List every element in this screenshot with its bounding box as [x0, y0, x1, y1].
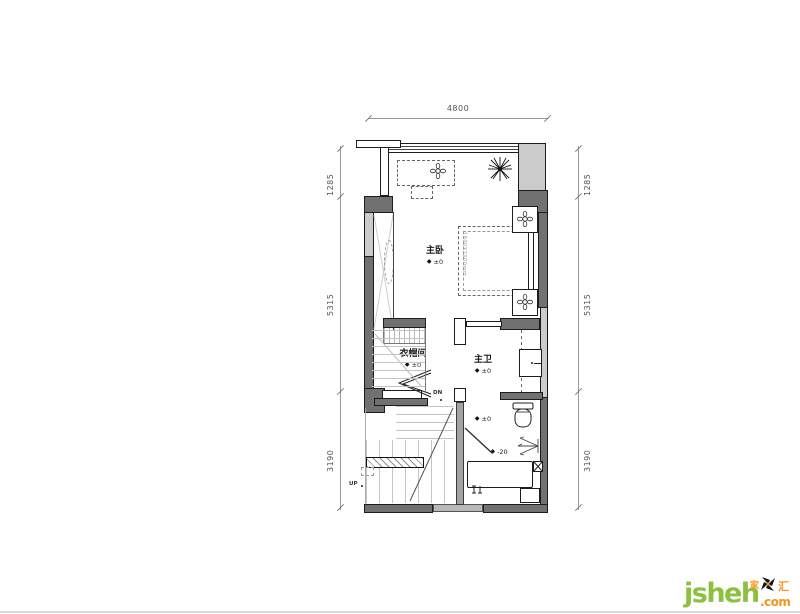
door-swing-line [464, 427, 494, 455]
wall-closet-top [383, 318, 426, 328]
diamond-icon: ◆ [475, 368, 480, 374]
door-track-bath [466, 321, 502, 327]
desk-outline [397, 160, 455, 186]
window-line [388, 146, 518, 147]
wall-bottom-right [483, 504, 548, 513]
stairs-up-label: UP [349, 481, 358, 487]
chair-outline [411, 186, 433, 199]
sink-faucet-line [534, 363, 542, 364]
elevation-value: ±0 [482, 367, 492, 375]
door-jamb-bath [454, 318, 466, 345]
floor-drain-x-icon [533, 461, 543, 472]
dim-tick [544, 115, 551, 122]
watermark: jsheh 家 汇 .com [680, 574, 800, 614]
shower-head-icon [516, 435, 540, 457]
window-line [388, 149, 518, 150]
dim-right-5315: 5315 [583, 272, 592, 316]
wall-hall-bath [456, 402, 464, 505]
stair-left-line [365, 408, 366, 504]
dim-right-1285: 1285 [583, 152, 592, 196]
dim-right-line [578, 146, 579, 510]
ceiling-light-icon [430, 163, 446, 179]
stair-note-box [361, 467, 374, 476]
stair-break-line-upper [373, 330, 425, 390]
room-label-master-bedroom: 主卧 [415, 246, 455, 256]
wall-bath-top [500, 318, 540, 330]
stairs-dn-label: DN [433, 390, 442, 396]
ceiling-light-icon [517, 294, 533, 310]
diamond-icon: ◆ [427, 259, 432, 265]
watermark-tld: .com [760, 595, 790, 609]
elevation-value: ±0 [434, 258, 444, 266]
dim-right-3190: 3190 [583, 428, 592, 472]
stairs-dn-dot [440, 399, 442, 401]
shower-step [520, 488, 540, 503]
elevation-marker-bath: ◆ ±0 [463, 367, 503, 375]
bed-headboard [528, 224, 534, 298]
plant-icon [487, 156, 513, 182]
dim-left-1285: 1285 [326, 152, 335, 196]
bed-inner-outline [463, 231, 529, 291]
window-line [388, 143, 518, 144]
watermark-logo-right: 汇 [778, 578, 789, 594]
wall-bottom-mid [433, 504, 483, 512]
diamond-icon: ◆ [475, 416, 480, 422]
ceiling-light-icon [517, 211, 533, 227]
elevation-marker-shower-zero: ◆ ±0 [468, 415, 498, 423]
wall-return-top [356, 140, 401, 148]
floor-plan-canvas: 4800 1285 5315 3190 1285 5315 3190 [0, 0, 800, 614]
bottom-border-line [0, 611, 800, 613]
stair-break-line [398, 404, 456, 504]
dim-left-5315: 5315 [326, 272, 335, 316]
elevation-value: -20 [497, 448, 508, 456]
shower-mixer-icon [470, 484, 486, 495]
wall-left-block [364, 196, 393, 213]
elevation-marker-bedroom: ◆ ±0 [415, 258, 455, 266]
stair-handrail [366, 457, 424, 468]
sink-faucet-dot [531, 362, 533, 364]
stair-edge-line [425, 328, 426, 392]
dim-left-line [340, 146, 341, 510]
dim-top-label: 4800 [430, 104, 486, 113]
wall-right-lower [540, 397, 548, 505]
window-line [388, 152, 518, 153]
wall-right-upper [538, 212, 548, 308]
wall-bottom-left [364, 504, 433, 513]
elevation-value: ±0 [482, 415, 492, 423]
dim-top-line [368, 118, 548, 119]
watermark-pinwheel-icon [759, 575, 777, 593]
wardrobe-front-line [393, 212, 394, 330]
column-top-right [518, 143, 546, 191]
wall-return-side [380, 147, 389, 196]
wall-shower-top [500, 392, 543, 400]
dim-left-3190: 3190 [326, 428, 335, 472]
bed-size-label: 1800X2000mm [461, 232, 467, 292]
door-jamb-hall [454, 388, 466, 402]
watermark-logo-left: 家 [750, 578, 759, 591]
stairs-up-dot [361, 485, 363, 487]
room-label-master-bath: 主卫 [463, 355, 503, 365]
watermark-brand: jsheh [684, 578, 759, 609]
toilet-icon [510, 402, 536, 429]
